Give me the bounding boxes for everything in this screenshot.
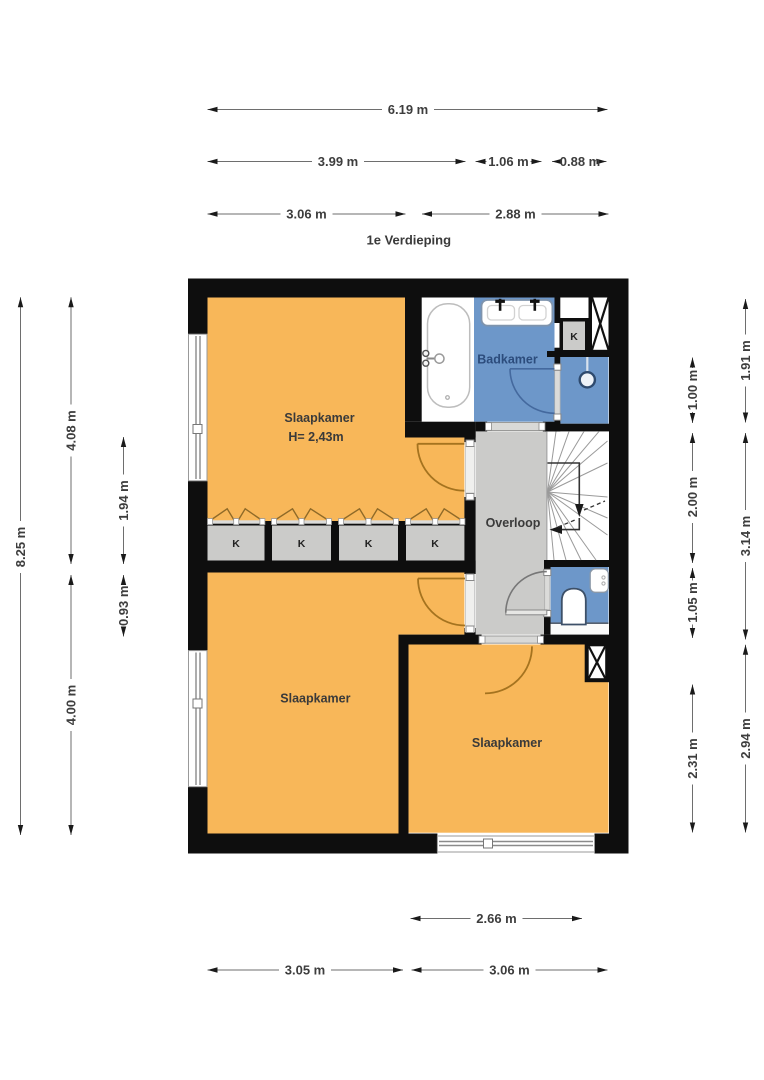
svg-text:2.94 m: 2.94 m — [738, 718, 753, 758]
svg-text:K: K — [431, 538, 439, 550]
svg-text:K: K — [298, 538, 306, 550]
svg-text:3.99 m: 3.99 m — [318, 154, 358, 169]
svg-text:4.00 m: 4.00 m — [64, 685, 79, 725]
svg-text:K: K — [232, 538, 240, 550]
svg-text:Slaapkamer: Slaapkamer — [472, 736, 542, 750]
svg-text:Slaapkamer: Slaapkamer — [280, 691, 350, 705]
svg-text:1.06 m: 1.06 m — [488, 154, 528, 169]
svg-text:1.00 m: 1.00 m — [685, 370, 700, 410]
svg-text:4.08 m: 4.08 m — [64, 410, 79, 450]
svg-text:1.94 m: 1.94 m — [116, 480, 131, 520]
svg-text:0.93 m: 0.93 m — [116, 586, 131, 626]
svg-text:3.06 m: 3.06 m — [286, 207, 326, 222]
svg-text:8.25 m: 8.25 m — [13, 527, 28, 567]
svg-text:6.19 m: 6.19 m — [388, 102, 428, 117]
svg-text:K: K — [570, 331, 578, 343]
svg-text:2.66 m: 2.66 m — [476, 911, 516, 926]
svg-text:Overloop: Overloop — [486, 516, 541, 530]
svg-text:H= 2,43m: H= 2,43m — [288, 430, 343, 444]
svg-text:2.00 m: 2.00 m — [685, 477, 700, 517]
svg-text:1.91 m: 1.91 m — [738, 340, 753, 380]
svg-text:3.05 m: 3.05 m — [285, 963, 325, 978]
svg-text:1e Verdieping: 1e Verdieping — [367, 233, 452, 248]
svg-text:Slaapkamer: Slaapkamer — [284, 411, 354, 425]
svg-text:3.06 m: 3.06 m — [489, 963, 529, 978]
svg-text:2.88 m: 2.88 m — [495, 207, 535, 222]
svg-text:2.31 m: 2.31 m — [685, 738, 700, 778]
svg-text:K: K — [365, 538, 373, 550]
svg-text:3.14 m: 3.14 m — [738, 516, 753, 556]
svg-text:Badkamer: Badkamer — [477, 353, 538, 367]
svg-text:1.05 m: 1.05 m — [685, 582, 700, 622]
svg-text:0.88 m: 0.88 m — [560, 154, 600, 169]
